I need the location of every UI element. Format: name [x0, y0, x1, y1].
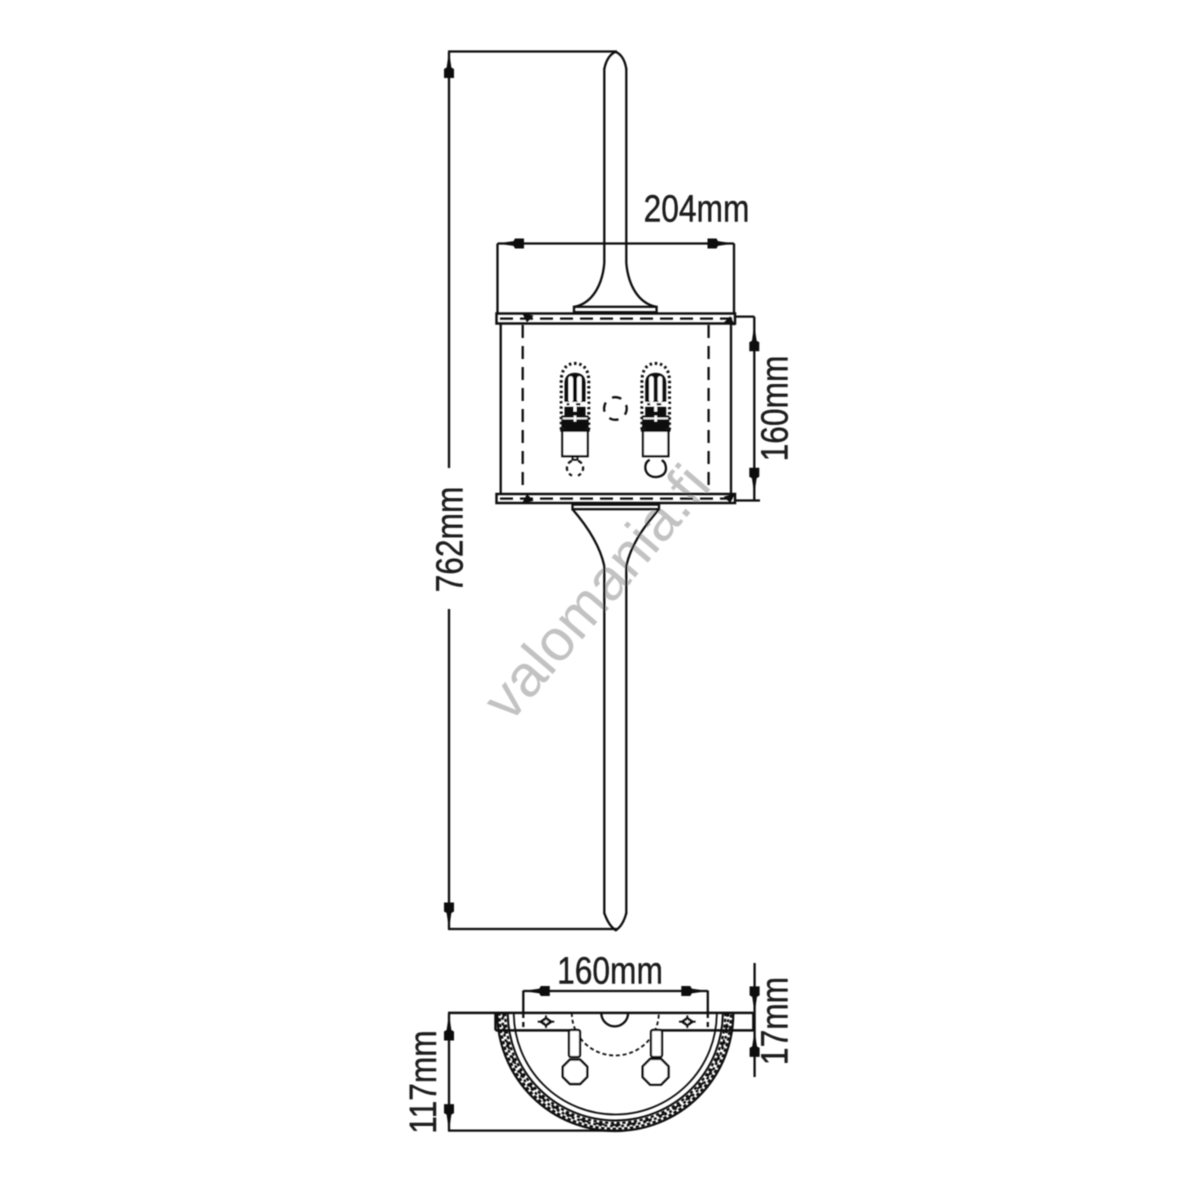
svg-text:762mm: 762mm	[429, 487, 471, 593]
svg-text:17mm: 17mm	[754, 977, 796, 1065]
svg-text:160mm: 160mm	[557, 950, 663, 992]
svg-text:117mm: 117mm	[402, 1030, 444, 1133]
svg-text:204mm: 204mm	[644, 188, 750, 230]
svg-text:160mm: 160mm	[754, 356, 796, 462]
